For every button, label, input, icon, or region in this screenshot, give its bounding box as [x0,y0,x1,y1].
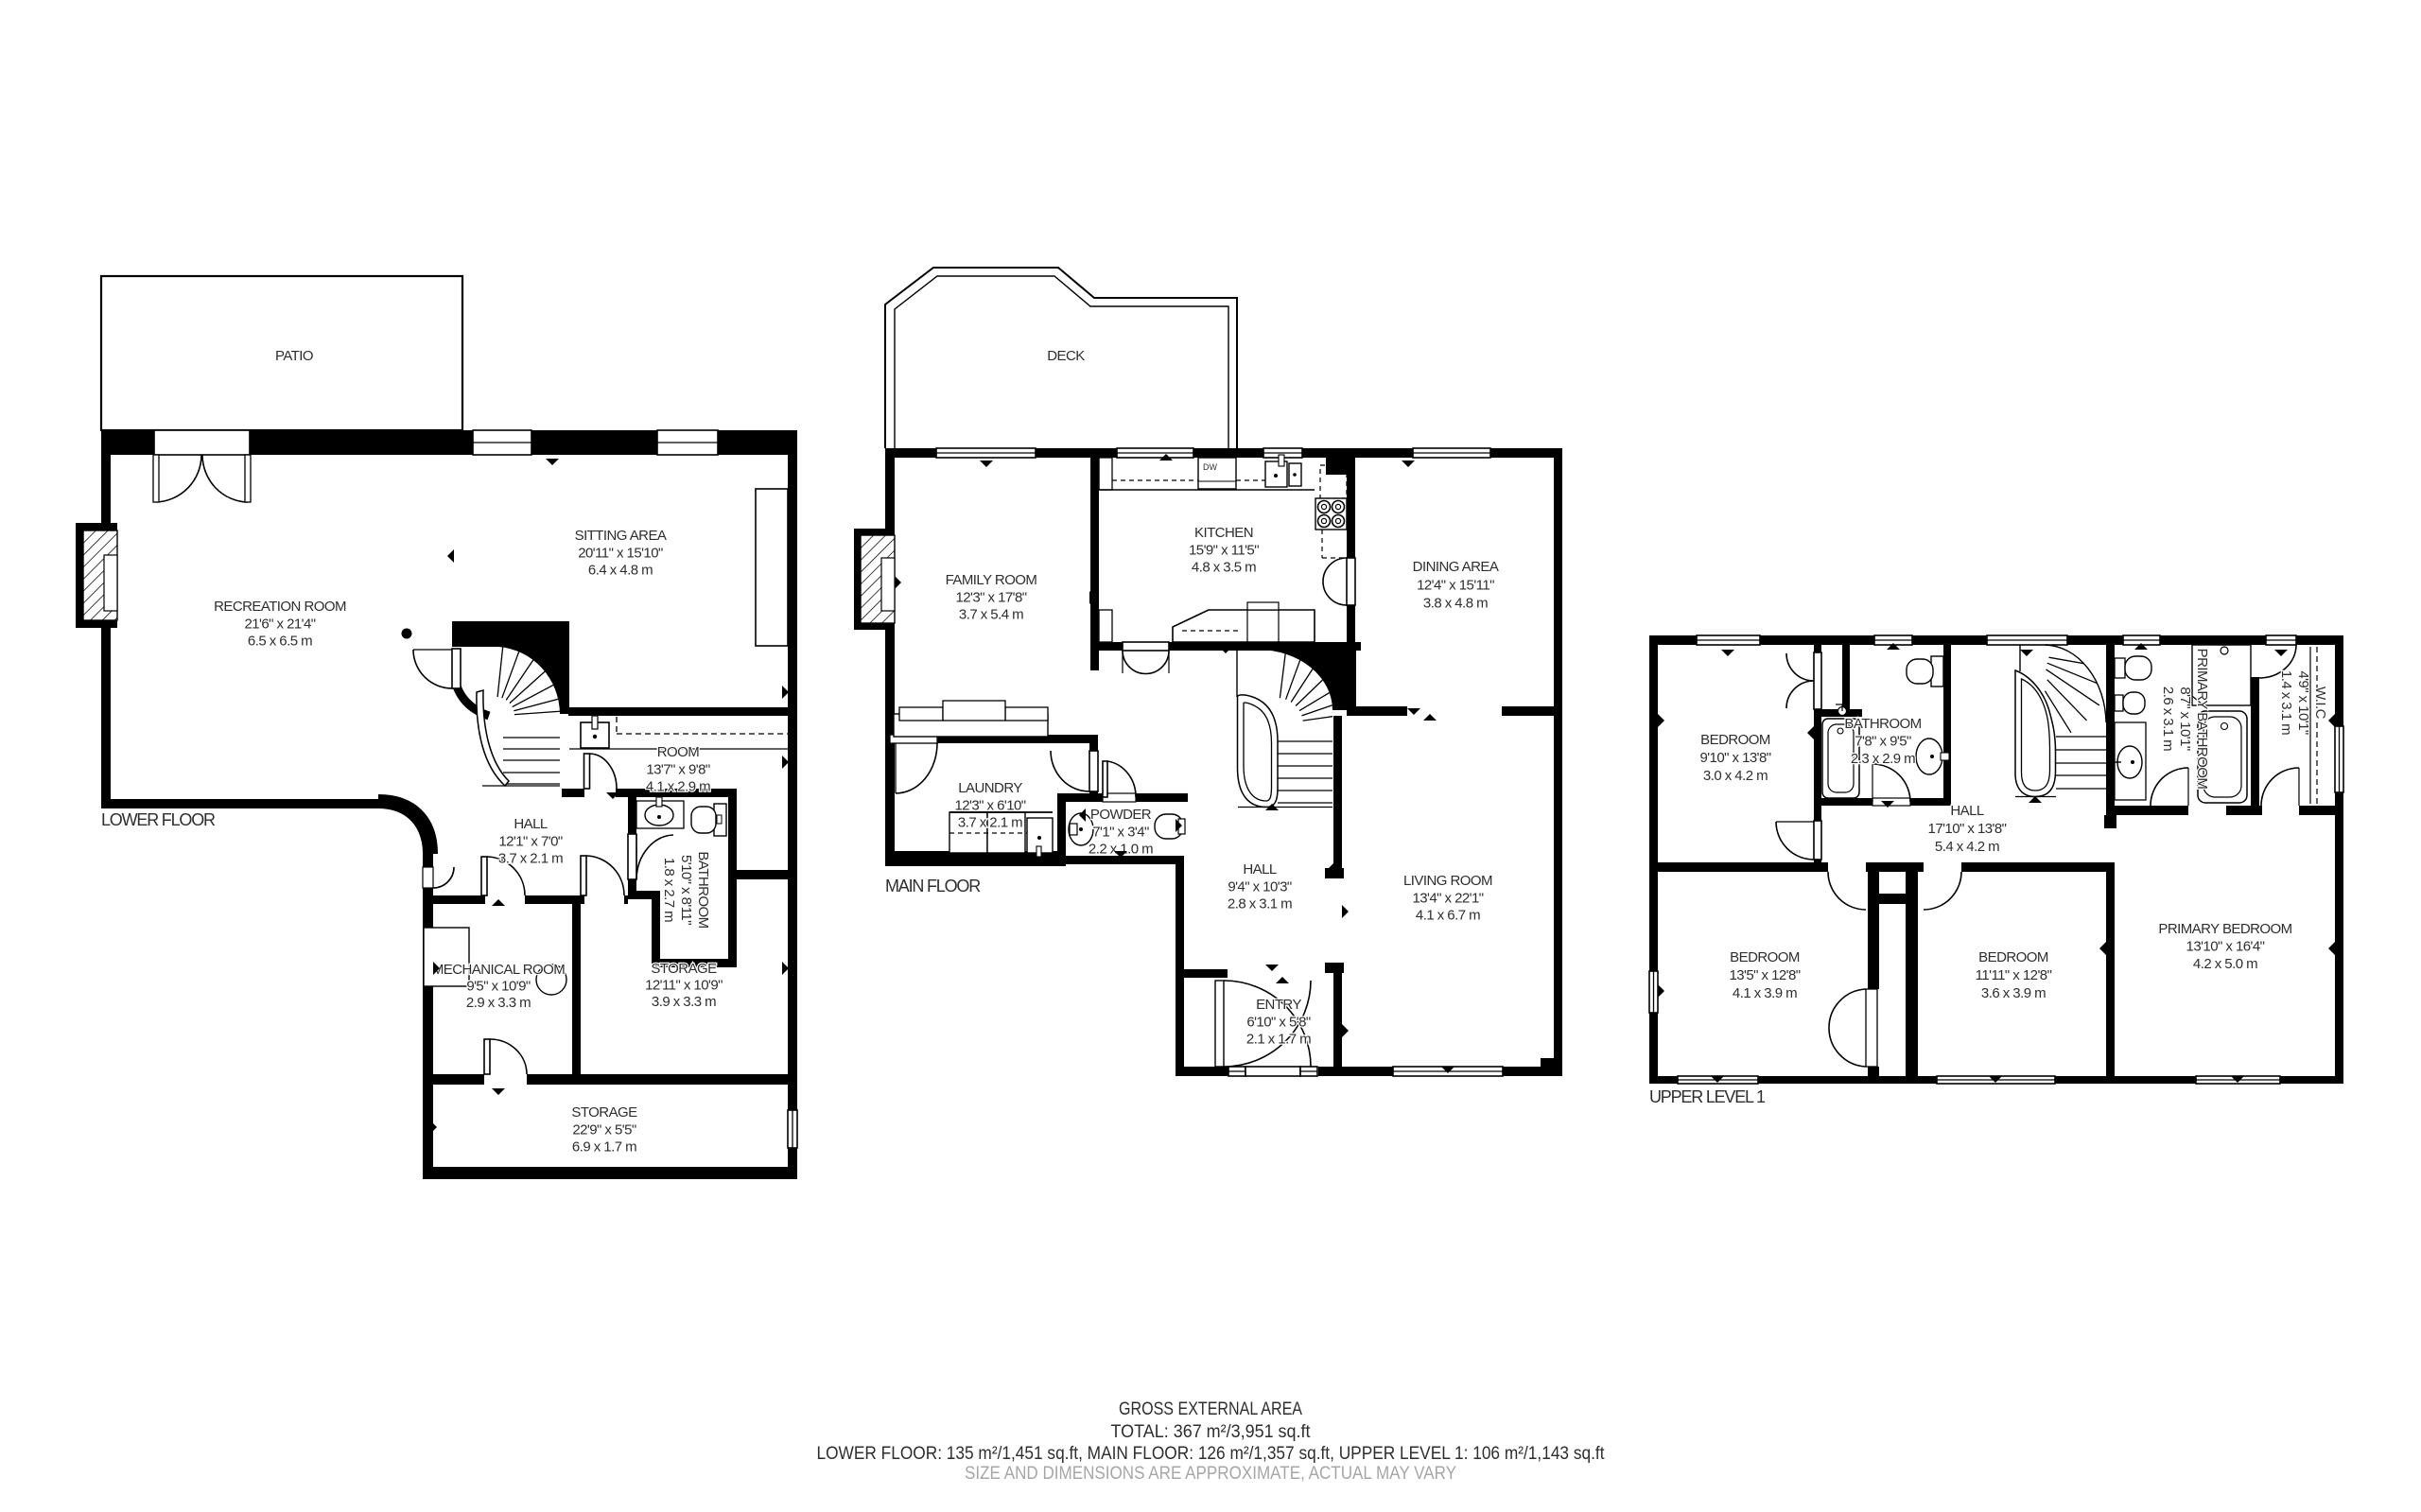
svg-text:6.5 x 6.5 m: 6.5 x 6.5 m [248,634,312,650]
svg-text:3.9 x 3.3 m: 3.9 x 3.3 m [652,994,716,1010]
svg-text:BATHROOM: BATHROOM [1844,716,1921,732]
svg-text:13'7" x 9'8": 13'7" x 9'8" [646,761,710,777]
svg-text:MAIN FLOOR: MAIN FLOOR [885,877,981,895]
svg-text:11'11" x 12'8": 11'11" x 12'8" [1976,967,2052,983]
svg-text:KITCHEN: KITCHEN [1194,525,1253,541]
svg-text:MECHANICAL ROOM: MECHANICAL ROOM [432,962,565,978]
svg-text:HALL: HALL [1243,861,1277,878]
svg-text:22'9" x 5'5": 22'9" x 5'5" [572,1121,636,1138]
svg-text:4.8 x 3.5 m: 4.8 x 3.5 m [1192,560,1256,576]
svg-text:STORAGE: STORAGE [651,961,717,977]
svg-text:5'10" x 8'11": 5'10" x 8'11" [678,855,694,925]
svg-text:W.I.C: W.I.C [2312,686,2328,720]
svg-text:1.4 x 3.1 m: 1.4 x 3.1 m [2278,670,2294,735]
svg-text:PATIO: PATIO [275,348,313,364]
svg-text:6'10" x 5'8": 6'10" x 5'8" [1246,1014,1311,1030]
svg-text:BEDROOM: BEDROOM [1978,949,2048,965]
svg-text:3.0 x 4.2 m: 3.0 x 4.2 m [1703,768,1768,784]
svg-text:6.9 x 1.7 m: 6.9 x 1.7 m [572,1139,636,1156]
svg-text:5.4 x 4.2 m: 5.4 x 4.2 m [1935,839,1999,855]
svg-text:7'1" x 3'4": 7'1" x 3'4" [1092,824,1149,840]
svg-text:DINING AREA: DINING AREA [1413,559,1499,575]
svg-text:ENTRY: ENTRY [1256,997,1301,1013]
svg-text:SITTING AREA: SITTING AREA [575,528,667,544]
svg-text:PRIMARY BATHROOM: PRIMARY BATHROOM [2194,649,2210,790]
svg-text:13'5" x 12'8": 13'5" x 12'8" [1729,967,1800,983]
svg-text:STORAGE: STORAGE [571,1104,637,1121]
svg-text:3.7 x 2.1 m: 3.7 x 2.1 m [958,815,1022,831]
svg-text:BEDROOM: BEDROOM [1730,949,1800,965]
svg-text:TOTAL: 367 m²/3,951 sq.ft: TOTAL: 367 m²/3,951 sq.ft [1111,1421,1312,1442]
svg-text:3.8 x 4.8 m: 3.8 x 4.8 m [1423,596,1488,612]
svg-text:12'3" x 6'10": 12'3" x 6'10" [954,797,1025,813]
svg-text:DECK: DECK [1047,348,1085,364]
svg-text:2.6 x 3.1 m: 2.6 x 3.1 m [2160,686,2176,751]
svg-text:12'1" x 7'0": 12'1" x 7'0" [498,833,563,849]
svg-text:1.8 x 2.7 m: 1.8 x 2.7 m [661,858,677,922]
svg-text:BATHROOM: BATHROOM [695,851,711,928]
svg-text:3.6 x 3.9 m: 3.6 x 3.9 m [1981,985,2046,1001]
svg-text:4.1 x 2.9 m: 4.1 x 2.9 m [646,779,710,795]
svg-text:13'4" x 22'1": 13'4" x 22'1" [1412,890,1483,906]
svg-text:2.1 x 1.7 m: 2.1 x 1.7 m [1246,1032,1311,1048]
svg-text:SIZE AND DIMENSIONS ARE APPROX: SIZE AND DIMENSIONS ARE APPROXIMATE, ACT… [965,1463,1456,1484]
svg-text:PRIMARY BEDROOM: PRIMARY BEDROOM [2158,921,2291,937]
svg-text:12'11" x 10'9": 12'11" x 10'9" [645,978,723,994]
svg-text:4'9" x 10'1": 4'9" x 10'1" [2295,670,2311,735]
svg-text:LIVING ROOM: LIVING ROOM [1403,873,1492,889]
svg-text:4.1 x 3.9 m: 4.1 x 3.9 m [1733,985,1797,1001]
svg-text:2.8 x 3.1 m: 2.8 x 3.1 m [1228,896,1292,912]
svg-text:21'6" x 21'4": 21'6" x 21'4" [244,616,315,632]
svg-text:UPPER LEVEL 1: UPPER LEVEL 1 [1649,1087,1766,1106]
svg-text:12'4" x 15'11": 12'4" x 15'11" [1417,577,1494,593]
svg-text:POWDER: POWDER [1090,807,1152,823]
svg-text:4.2 x 5.0 m: 4.2 x 5.0 m [2193,956,2257,972]
svg-text:12'3" x 17'8": 12'3" x 17'8" [955,589,1026,605]
svg-text:15'9" x 11'5": 15'9" x 11'5" [1189,542,1259,558]
svg-text:ROOM: ROOM [657,744,700,760]
svg-text:GROSS EXTERNAL AREA: GROSS EXTERNAL AREA [1119,1399,1302,1419]
svg-text:HALL: HALL [1950,803,1984,819]
svg-text:BEDROOM: BEDROOM [1700,732,1770,748]
svg-text:3.7 x 5.4 m: 3.7 x 5.4 m [959,607,1023,623]
svg-text:8'7" x 10'1": 8'7" x 10'1" [2177,686,2193,751]
svg-text:3.7 x 2.1 m: 3.7 x 2.1 m [498,851,563,867]
svg-text:LOWER FLOOR: 135 m²/1,451 sq.f: LOWER FLOOR: 135 m²/1,451 sq.ft, MAIN FL… [817,1443,1606,1464]
svg-text:6.4 x 4.8 m: 6.4 x 4.8 m [588,563,653,579]
svg-text:9'10" x 13'8": 9'10" x 13'8" [1699,750,1770,766]
svg-text:2.3 x 2.9 m: 2.3 x 2.9 m [1851,751,1915,767]
svg-text:FAMILY ROOM: FAMILY ROOM [946,572,1037,588]
svg-text:4.1 x 6.7 m: 4.1 x 6.7 m [1416,908,1480,924]
svg-text:LAUNDRY: LAUNDRY [958,780,1022,796]
svg-text:HALL: HALL [514,816,548,832]
svg-text:13'10" x 16'4": 13'10" x 16'4" [2186,939,2265,955]
svg-text:2.9 x 3.3 m: 2.9 x 3.3 m [466,995,531,1011]
svg-text:RECREATION ROOM: RECREATION ROOM [214,599,346,615]
svg-text:7'8" x 9'5": 7'8" x 9'5" [1855,734,1911,750]
svg-text:9'4" x 10'3": 9'4" x 10'3" [1228,878,1292,895]
svg-text:20'11" x 15'10": 20'11" x 15'10" [578,545,663,561]
svg-text:9'5" x 10'9": 9'5" x 10'9" [466,979,531,995]
svg-text:LOWER FLOOR: LOWER FLOOR [101,810,216,829]
svg-text:DW: DW [1203,462,1217,472]
svg-text:17'10" x 13'8": 17'10" x 13'8" [1928,821,2007,837]
